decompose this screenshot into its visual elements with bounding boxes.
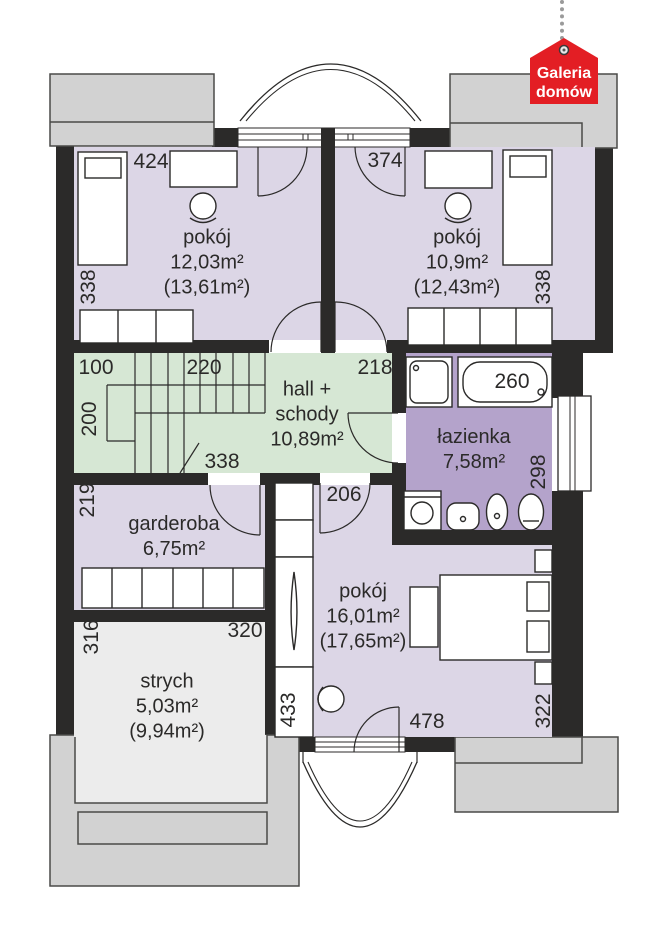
room-name: strych [129,670,205,695]
dim-322: 322 [533,693,555,728]
room-label-pokoj-tr: pokój 10,9m² (12,43m²) [414,226,501,301]
dim-220: 220 [186,357,221,379]
logo-tag: Galeria domów [528,36,600,106]
strych-floor-extension [75,735,267,803]
balcony-bottom-arc [303,762,417,827]
dim-316: 316 [81,619,103,654]
logo-line2: domów [536,84,593,101]
dim-298: 298 [528,454,550,489]
room-name: garderoba [128,512,219,537]
room-name: pokój [320,580,407,605]
pillow [527,582,549,611]
wall-right-upper [595,122,613,352]
room-label-pokoj-bottom: pokój 16,01m² (17,65m²) [320,580,407,655]
desk-tl [170,151,237,187]
room-area-gross: (17,65m²) [320,630,407,655]
room-area: 10,9m² [414,251,501,276]
room-label-strych: strych 5,03m² (9,94m²) [129,670,205,745]
wall-left [56,122,74,737]
pillow [510,156,546,177]
closet-box [275,483,313,520]
floorplan-drawing [0,0,668,949]
dim-218: 218 [357,357,392,379]
room-name: pokój [164,226,251,251]
desk-tr [425,151,492,188]
room-name: schody [270,403,343,428]
nightstand [535,662,552,684]
room-area: 7,58m² [437,450,510,475]
room-label-garderoba: garderoba 6,75m² [128,512,219,562]
room-area: 16,01m² [320,605,407,630]
dim-478: 478 [409,711,444,733]
closet-box [275,520,313,557]
nightstand [535,550,552,572]
dim-338-hall: 338 [204,451,239,473]
room-area-gross: (13,61m²) [164,276,251,301]
room-label-hall: hall + schody 10,89m² [270,378,343,453]
room-area: 10,89m² [270,428,343,453]
toilet [519,494,544,530]
room-name: hall + [270,378,343,403]
dim-200: 200 [79,401,101,436]
dim-338-right: 338 [533,269,555,304]
chair-tr [445,193,471,219]
dim-424: 424 [133,151,168,173]
wall-right-lower [552,491,583,737]
room-area-gross: (12,43m²) [414,276,501,301]
side-table [410,587,438,647]
dresser-tl [80,310,193,343]
room-area: 6,75m² [128,537,219,562]
room-name: pokój [414,226,501,251]
dim-320: 320 [227,620,262,642]
balcony-top-arc [240,64,421,121]
bidet [487,494,508,530]
pillow [85,158,121,178]
chair-bedroom [318,686,344,712]
pillow [527,621,549,652]
dim-206: 206 [326,484,361,506]
logo-line1: Galeria [537,65,591,82]
dim-219: 219 [77,482,99,517]
room-area: 12,03m² [164,251,251,276]
room-area-gross: (9,94m²) [129,720,205,745]
balcony-mullion [321,128,335,147]
dim-338-left: 338 [78,269,100,304]
chair-tl [190,193,216,219]
mirror-glyph [291,572,297,650]
dim-260: 260 [494,371,529,393]
room-label-pokoj-tl: pokój 12,03m² (13,61m²) [164,226,251,301]
roof-top-left [50,74,214,146]
galeria-domow-logo: Galeria domów [528,36,600,106]
dim-374: 374 [367,150,402,172]
dim-433: 433 [278,692,300,727]
roof-bottom-right [455,737,618,812]
balcony-door-bottom [315,737,405,752]
dim-100: 100 [78,357,113,379]
room-area: 5,03m² [129,695,205,720]
floorplan-canvas: pokój 12,03m² (13,61m²) pokój 10,9m² (12… [0,0,668,949]
wall-center [321,128,335,353]
room-label-lazienka: łazienka 7,58m² [437,425,510,475]
room-name: łazienka [437,425,510,450]
logo-chain [560,0,564,40]
